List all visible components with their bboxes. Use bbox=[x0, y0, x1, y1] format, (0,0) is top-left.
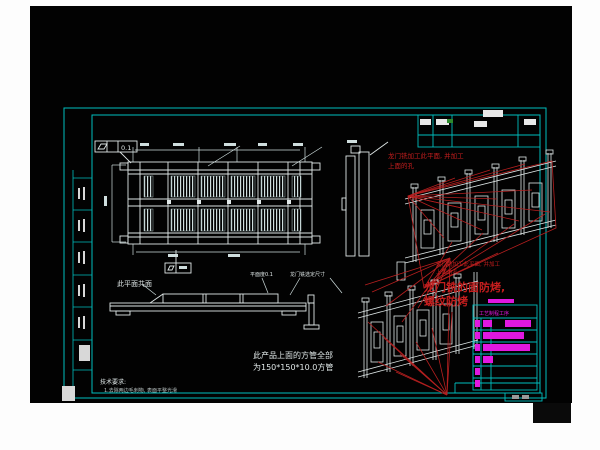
note-flatness: 平面度0.1 bbox=[250, 271, 273, 278]
tech-req-title: 技术要求: bbox=[100, 378, 126, 386]
red-big-note-1: 龙门铣的面防烤, bbox=[423, 280, 505, 294]
cad-canvas: 0.1 bbox=[0, 0, 600, 450]
process-row-text-block bbox=[475, 380, 480, 387]
note-tube-1: 此产品上面的方管全部 bbox=[253, 350, 333, 360]
gdt-value-text: 0.1 bbox=[121, 144, 131, 152]
cad-screenshot: 0.1 bbox=[0, 0, 600, 450]
process-row-text-block bbox=[483, 320, 492, 327]
red-note-lower-2: 上面的孔 bbox=[436, 268, 459, 276]
process-row-text-block bbox=[505, 320, 531, 327]
green-mark bbox=[447, 119, 453, 123]
process-row-text-block bbox=[475, 356, 480, 363]
title-text-mark bbox=[522, 395, 529, 399]
process-row-text-block bbox=[475, 320, 480, 327]
title-text-mark bbox=[512, 395, 519, 399]
red-big-note-2: 螺纹防烤 bbox=[424, 294, 468, 308]
process-row-text-block bbox=[475, 332, 480, 339]
red-note-upper-2: 上面的孔 bbox=[388, 161, 415, 170]
note-coplanar: 此平面共面 bbox=[117, 279, 152, 288]
note-mill-size: 龙门铣选定尺寸 bbox=[290, 271, 325, 278]
note-tube-2: 为150*150*10.0方管 bbox=[253, 362, 333, 372]
process-row-text-block bbox=[475, 368, 480, 375]
red-note-upper-1: 龙门铣加工此平面, 并加工 bbox=[388, 151, 464, 160]
process-row-text-block bbox=[483, 332, 524, 339]
process-table-header: 工艺制程工序 bbox=[479, 310, 509, 317]
table-caption-block bbox=[488, 299, 514, 303]
process-row-text-block bbox=[483, 356, 493, 363]
red-note-lower-1: 龙门铣加工此平面, 并加工 bbox=[436, 260, 500, 268]
tech-req-item: 1.去除两边毛刺物, 表面平整光滑 bbox=[104, 387, 177, 394]
process-row-text-block bbox=[483, 344, 530, 351]
process-row-text-block bbox=[475, 344, 480, 351]
